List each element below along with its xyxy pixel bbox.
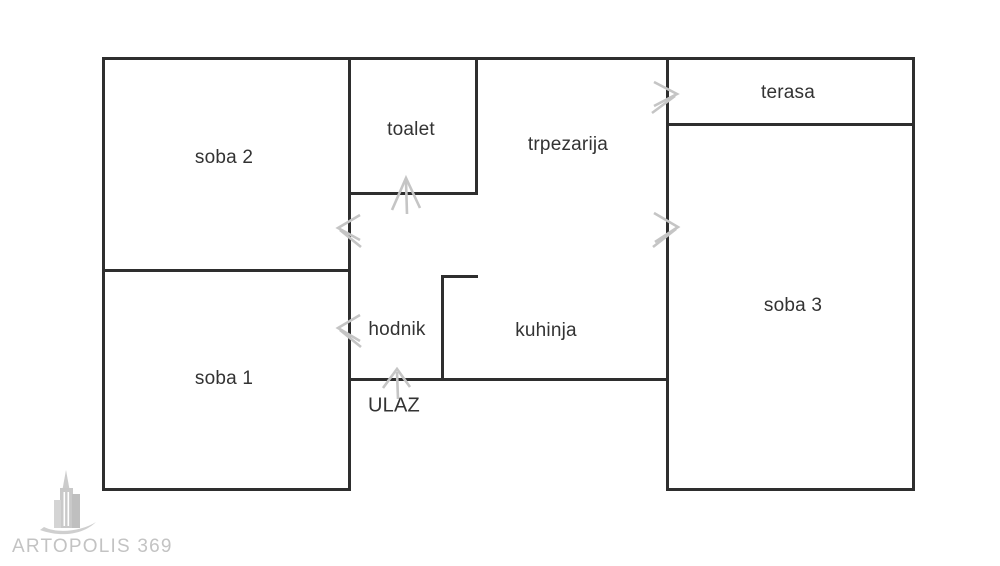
room-label-hodnik: hodnik bbox=[368, 319, 425, 341]
watermark-text: ARTOPOLIS 369 bbox=[12, 536, 173, 558]
building-logo-icon bbox=[30, 460, 106, 536]
watermark: ARTOPOLIS 369 bbox=[8, 460, 158, 560]
floor-plan: soba 2toalettrpezarijaterasasoba 3soba 1… bbox=[0, 0, 1000, 566]
room-label-soba1: soba 1 bbox=[195, 368, 253, 390]
room-label-soba3: soba 3 bbox=[764, 295, 822, 317]
room-label-trpezarija: trpezarija bbox=[528, 134, 608, 156]
room-label-toalet: toalet bbox=[387, 119, 435, 141]
room-label-terasa: terasa bbox=[761, 82, 815, 104]
door-toalet-tail-icon bbox=[406, 181, 407, 214]
room-label-kuhinja: kuhinja bbox=[515, 320, 577, 342]
door-soba3-tail-icon bbox=[653, 229, 676, 247]
room-label-soba2: soba 2 bbox=[195, 147, 253, 169]
room-label-ulaz: ULAZ bbox=[368, 395, 420, 418]
